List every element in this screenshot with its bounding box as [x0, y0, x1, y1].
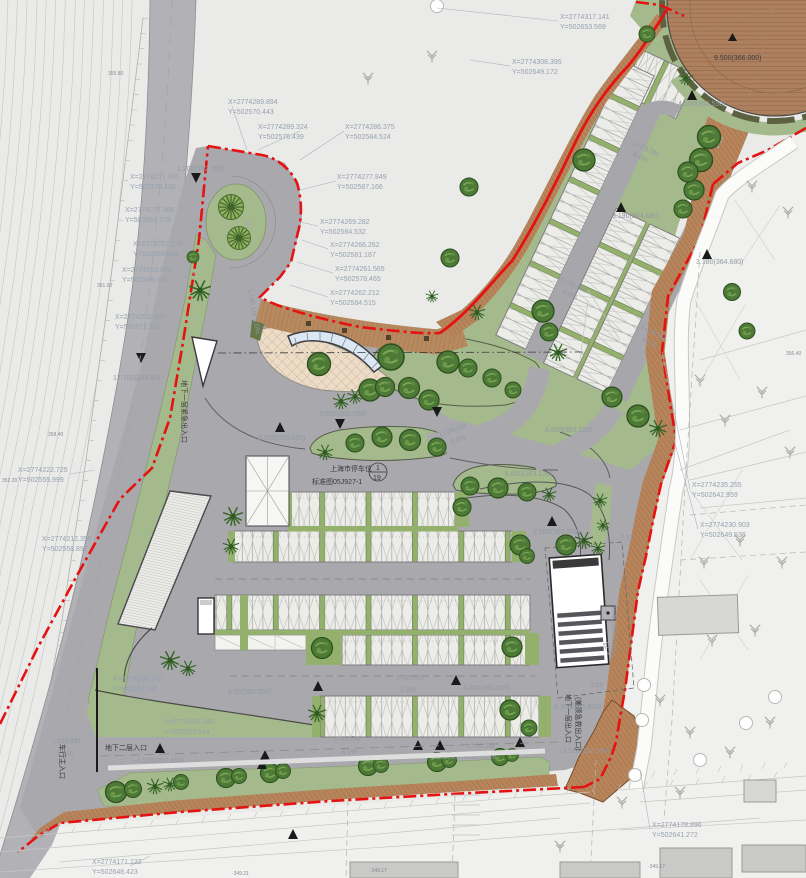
svg-text:Y=502649.536: Y=502649.536 [700, 532, 746, 539]
svg-text:355.80: 355.80 [108, 71, 124, 77]
svg-text:1.200(352.700): 1.200(352.700) [177, 166, 224, 173]
svg-text:Y=502559.544: Y=502559.544 [164, 729, 210, 736]
svg-text:3.500(360.000): 3.500(360.000) [533, 529, 580, 536]
svg-text:X=2774193.245: X=2774193.245 [113, 676, 163, 683]
svg-text:X=2774230.903: X=2774230.903 [700, 522, 750, 529]
svg-text:Y=502648.423: Y=502648.423 [92, 869, 138, 876]
svg-text:5.00(360.000): 5.00(360.000) [228, 689, 272, 696]
svg-text:Y=502584.524: Y=502584.524 [345, 134, 391, 141]
svg-text:4.000(360.500): 4.000(360.500) [463, 685, 510, 692]
svg-text:X=2774253.355: X=2774253.355 [115, 314, 165, 321]
svg-text:X=2774277.849: X=2774277.849 [337, 174, 387, 181]
svg-text:X=2774178.896: X=2774178.896 [652, 822, 702, 829]
svg-text:X=2774308.395: X=2774308.395 [512, 59, 562, 66]
svg-text:Y=502568.346: Y=502568.346 [122, 277, 168, 284]
svg-text:2.00: 2.00 [590, 682, 604, 689]
svg-text:X=2774235.255: X=2774235.255 [692, 482, 742, 489]
svg-text:标准图05J927-1: 标准图05J927-1 [312, 477, 362, 486]
svg-text:·349.21: ·349.21 [232, 871, 249, 877]
svg-text:358.40: 358.40 [48, 432, 64, 438]
svg-text:L=30.6M: L=30.6M [396, 675, 424, 682]
svg-text:7.11: 7.11 [620, 535, 633, 542]
svg-text:3.500(360.000): 3.500(360.000) [258, 435, 305, 442]
svg-text:X=2774266.262: X=2774266.262 [330, 242, 380, 249]
svg-text:4.100(362.550): 4.100(362.550) [678, 101, 725, 108]
svg-text:6.620(363.120): 6.620(363.120) [505, 471, 552, 478]
svg-text:Y=502584.532: Y=502584.532 [320, 229, 366, 236]
svg-text:Y=502642.959: Y=502642.959 [692, 492, 738, 499]
svg-text:X=2774269.282: X=2774269.282 [320, 219, 370, 226]
svg-text:X=2774222.725: X=2774222.725 [18, 467, 68, 474]
svg-text:L=19.5M: L=19.5M [53, 738, 81, 745]
svg-text:地下一层出入口: 地下一层出入口 [564, 694, 573, 743]
svg-text:·349.17: ·349.17 [370, 868, 387, 874]
svg-text:X=2774286.375: X=2774286.375 [345, 124, 395, 131]
svg-text:356.40: 356.40 [786, 351, 802, 357]
svg-text:X=2774193.245: X=2774193.245 [164, 719, 214, 726]
svg-text:Y=502653.569: Y=502653.569 [560, 24, 606, 31]
svg-text:上海市停车位: 上海市停车位 [330, 464, 372, 473]
svg-text:Y=502584.515: Y=502584.515 [330, 300, 376, 307]
svg-text:1: 1 [376, 465, 380, 472]
svg-text:Y=502568.946: Y=502568.946 [133, 251, 179, 258]
svg-text:Y=502587.166: Y=502587.166 [337, 184, 383, 191]
svg-text:351.90: 351.90 [97, 283, 113, 289]
svg-text:Y=502569.728: Y=502569.728 [125, 217, 171, 224]
svg-text:Y=502649.172: Y=502649.172 [512, 69, 558, 76]
svg-text:1.8%: 1.8% [400, 687, 416, 694]
svg-text:地下二层入口: 地下二层入口 [105, 743, 147, 752]
svg-text:Y=502572.282: Y=502572.282 [115, 324, 161, 331]
svg-text:3.1%: 3.1% [341, 749, 357, 756]
svg-text:L=19.5M: L=19.5M [333, 736, 361, 743]
svg-text:3.180(364.680): 3.180(364.680) [696, 259, 743, 266]
svg-text:3.180(364.680): 3.180(364.680) [612, 213, 659, 220]
svg-text:X=2774261.565: X=2774261.565 [335, 266, 385, 273]
svg-text:L=40.0M 8.0%: L=40.0M 8.0% [610, 606, 617, 651]
svg-text:Y=502578.465: Y=502578.465 [335, 276, 381, 283]
svg-text:X=2774171.122: X=2774171.122 [92, 859, 142, 866]
svg-text:Y=502641.272: Y=502641.272 [652, 832, 698, 839]
svg-text:352.20: 352.20 [2, 478, 18, 484]
svg-text:-3.510(352.990): -3.510(352.990) [560, 748, 610, 755]
svg-text:6.620(363.120): 6.620(363.120) [545, 427, 592, 434]
svg-text:3.500(360.000): 3.500(360.000) [319, 411, 366, 418]
svg-text:车行主入口: 车行主入口 [58, 744, 67, 779]
svg-text:9.500(366.000): 9.500(366.000) [714, 55, 761, 62]
svg-text:X=2774263.695: X=2774263.695 [122, 267, 172, 274]
svg-text:Y=502555.999: Y=502555.999 [18, 477, 64, 484]
svg-text:X=2774217.355: X=2774217.355 [42, 536, 92, 543]
svg-text:19: 19 [373, 475, 381, 482]
svg-text:X=2774289.894: X=2774289.894 [228, 99, 278, 106]
svg-text:Y=502570.438: Y=502570.438 [130, 184, 176, 191]
svg-text:Y=502551.845: Y=502551.845 [113, 686, 159, 693]
svg-text:1.300(355.600): 1.300(355.600) [554, 704, 601, 711]
svg-text:X=2774267.278: X=2774267.278 [133, 241, 183, 248]
svg-text:X=2774317.141: X=2774317.141 [560, 14, 610, 21]
svg-text:Y=502558.897: Y=502558.897 [42, 546, 88, 553]
svg-text:X=2774289.324: X=2774289.324 [258, 124, 308, 131]
svg-text:·349.17: ·349.17 [648, 864, 665, 870]
svg-text:Y=502581.187: Y=502581.187 [330, 252, 376, 259]
svg-text:地下一层紧急出入口: 地下一层紧急出入口 [180, 380, 189, 443]
svg-text:X=2774277.631: X=2774277.631 [130, 174, 180, 181]
svg-text:X=2774262.212: X=2774262.212 [330, 290, 380, 297]
svg-text:X=2774271.365: X=2774271.365 [125, 207, 175, 214]
